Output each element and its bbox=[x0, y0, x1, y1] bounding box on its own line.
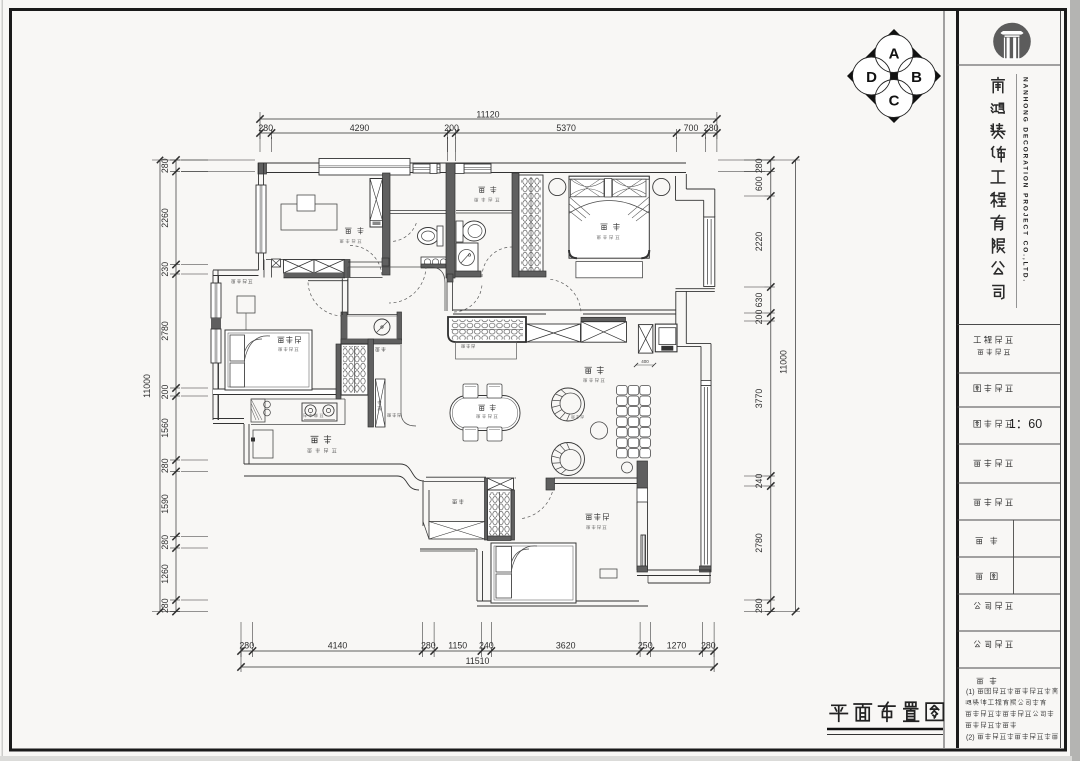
svg-text:280: 280 bbox=[704, 123, 719, 133]
svg-text:280: 280 bbox=[160, 158, 170, 173]
svg-text:1560: 1560 bbox=[160, 418, 170, 438]
svg-text:630: 630 bbox=[754, 293, 764, 308]
svg-text:1590: 1590 bbox=[160, 494, 170, 514]
svg-text:280: 280 bbox=[258, 123, 273, 133]
svg-text:NANHONG DECORATION PROJECT CO.: NANHONG DECORATION PROJECT CO.,LTD. bbox=[1022, 77, 1029, 283]
svg-text:280: 280 bbox=[754, 598, 764, 613]
svg-text:11120: 11120 bbox=[476, 110, 499, 120]
svg-text:230: 230 bbox=[160, 262, 170, 277]
svg-text:11000: 11000 bbox=[142, 374, 152, 398]
svg-text:3620: 3620 bbox=[556, 641, 576, 651]
svg-text:280: 280 bbox=[754, 158, 764, 173]
svg-text:280: 280 bbox=[160, 458, 170, 473]
svg-text:3770: 3770 bbox=[754, 389, 764, 409]
svg-text:600: 600 bbox=[754, 176, 764, 191]
svg-text:2260: 2260 bbox=[160, 208, 170, 228]
svg-text:5370: 5370 bbox=[556, 123, 576, 133]
svg-text:280: 280 bbox=[421, 641, 436, 651]
svg-text:1：60: 1：60 bbox=[1009, 417, 1042, 431]
svg-text:1260: 1260 bbox=[160, 564, 170, 584]
svg-text:B: B bbox=[911, 69, 922, 86]
svg-text:400: 400 bbox=[641, 359, 649, 364]
svg-text:11000: 11000 bbox=[779, 350, 789, 374]
svg-text:2780: 2780 bbox=[754, 533, 764, 553]
svg-text:200: 200 bbox=[160, 385, 170, 400]
svg-text:280: 280 bbox=[239, 641, 254, 651]
svg-text:1270: 1270 bbox=[667, 641, 687, 651]
svg-text:1150: 1150 bbox=[448, 641, 467, 651]
svg-text:A: A bbox=[889, 46, 900, 63]
svg-text:(1): (1) bbox=[966, 689, 975, 696]
svg-text:C: C bbox=[889, 93, 900, 110]
svg-text:280: 280 bbox=[160, 535, 170, 550]
svg-text:200: 200 bbox=[444, 123, 459, 133]
svg-text:(2): (2) bbox=[966, 734, 975, 741]
svg-text:700: 700 bbox=[684, 123, 699, 133]
svg-text:4140: 4140 bbox=[328, 641, 348, 651]
svg-text:2220: 2220 bbox=[754, 232, 764, 252]
svg-text:D: D bbox=[866, 69, 877, 86]
svg-text:4290: 4290 bbox=[350, 123, 370, 133]
svg-text:200: 200 bbox=[754, 310, 764, 325]
svg-text:280: 280 bbox=[701, 641, 716, 651]
svg-text:2780: 2780 bbox=[160, 321, 170, 341]
svg-text:11510: 11510 bbox=[466, 656, 490, 666]
